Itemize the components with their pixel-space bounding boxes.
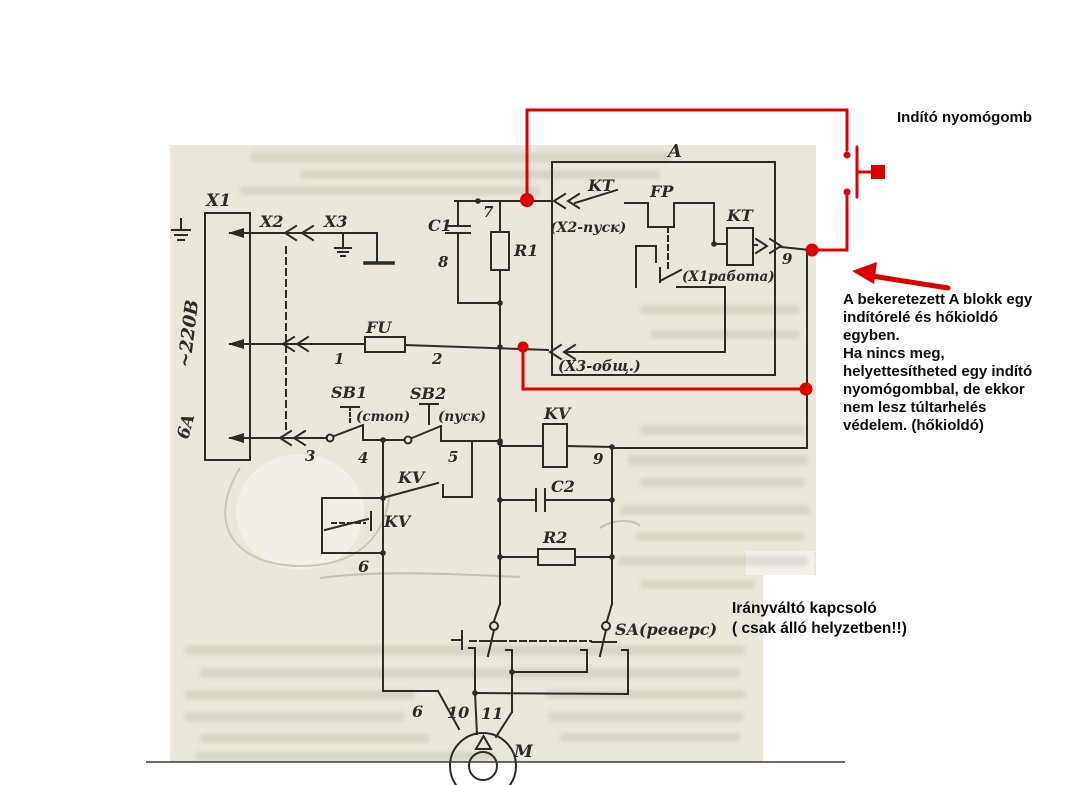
start-button-caption: Indító nyomógomb: [897, 109, 1032, 126]
scanned-schematic-page: X1 X2 X3 ~220B 6A C1 7 R1 8 A KT FP KT (…: [0, 0, 1065, 785]
label-node5: 5: [448, 448, 458, 466]
label-kv-contact2: KV: [383, 512, 412, 531]
label-stop: (стоп): [356, 409, 410, 425]
label-x1-rabota: (X1работа): [682, 269, 775, 285]
label-node6: 6: [358, 557, 369, 576]
block-a-note-line: egyben.: [843, 327, 900, 344]
label-sb2: SB2: [410, 384, 446, 403]
reverser-note-line: ( csak álló helyzetben!!): [732, 620, 907, 637]
label-sb1: SB1: [331, 383, 367, 402]
block-a-note-line: A bekeretezett A blokk egy: [843, 291, 1033, 308]
label-x3-obsh: (X3-общ.): [558, 358, 641, 375]
label-node2: 2: [431, 350, 442, 368]
label-motor-m: M: [513, 742, 534, 762]
label-block-a: A: [666, 141, 682, 162]
reverser-note-line: Irányváltó kapcsoló: [732, 600, 877, 617]
block-a-note-line: nyomógombbal, de ekkor: [843, 381, 1025, 398]
block-a-note-line: indítórelé és hőkioldó: [843, 309, 998, 326]
label-node9b: 9: [593, 450, 604, 468]
label-node4: 4: [358, 449, 368, 467]
label-node3: 3: [305, 447, 315, 465]
label-x2-pusk: (X2-пуск): [550, 220, 626, 236]
label-node6-motor: 6: [412, 702, 423, 721]
label-kv-contact1: KV: [397, 468, 426, 487]
block-a-note-line: helyettesítheted egy indító: [843, 363, 1032, 380]
label-kt-contact: KT: [587, 176, 615, 195]
label-node10: 10: [447, 703, 469, 722]
label-x2: X2: [259, 212, 284, 231]
label-node1: 1: [334, 350, 344, 368]
label-fp: FP: [649, 182, 674, 201]
label-node8: 8: [438, 253, 449, 271]
block-a-note-line: Ha nincs meg,: [843, 345, 945, 362]
label-kt-coil: KT: [726, 206, 754, 225]
label-kv-coil: KV: [543, 404, 572, 423]
label-r1: R1: [513, 241, 538, 260]
block-a-note-line: nem lesz túltarhelés: [843, 399, 986, 416]
label-c1: C1: [428, 216, 452, 235]
label-node7: 7: [483, 203, 494, 221]
red-arrow: [852, 262, 948, 288]
label-node9-terminal: 9: [782, 250, 793, 268]
block-a-note-line: védelem. (hőkioldó): [843, 417, 984, 434]
label-node11: 11: [481, 704, 503, 723]
label-fu: FU: [365, 318, 392, 337]
label-x1: X1: [205, 191, 231, 211]
label-sa: SA(реверс): [615, 620, 717, 639]
block-a-note: A bekeretezett A blokk egy indítórelé és…: [843, 291, 1033, 434]
label-c2: C2: [551, 477, 575, 496]
label-r2: R2: [542, 528, 567, 547]
label-pusk: (пуск): [438, 409, 486, 425]
label-x3: X3: [323, 212, 348, 231]
circuit-diagram: X1 X2 X3 ~220B 6A C1 7 R1 8 A KT FP KT (…: [0, 0, 1065, 785]
